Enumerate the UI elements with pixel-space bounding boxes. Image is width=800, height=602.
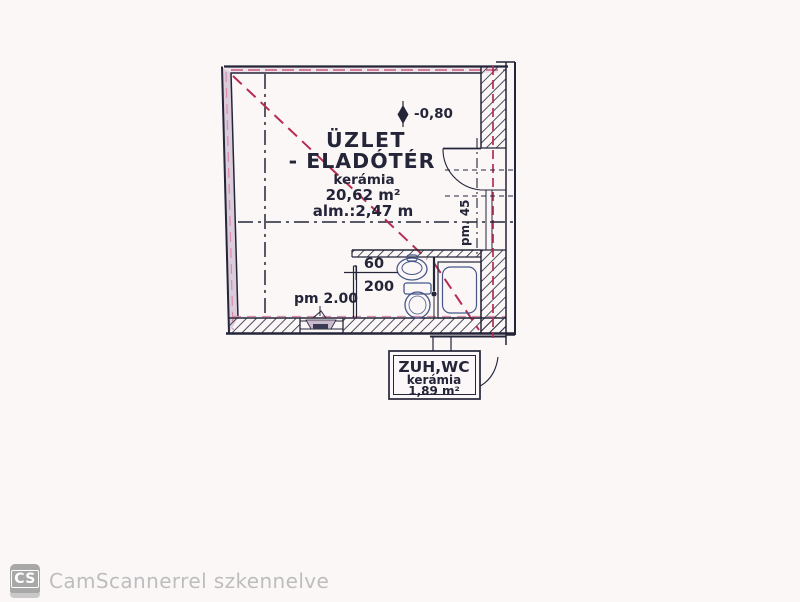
scanned-floor-plan-page: -0,80 ÜZLET - ELADÓTÉR kerámia 20,62 m² …: [0, 0, 800, 602]
parapet-bottom-label: pm 2.00: [294, 291, 358, 307]
room-height-note: alm.:2,47 m: [313, 202, 413, 220]
level-value: -0,80: [414, 106, 453, 122]
floor-plan-canvas: -0,80 ÜZLET - ELADÓTÉR kerámia 20,62 m² …: [0, 0, 800, 602]
shower-tray-icon: [438, 262, 481, 318]
door-swing-arc: [443, 149, 481, 191]
wet-room-label-box: ZUH,WC kerámia 1,89 m²: [389, 337, 498, 399]
level-marker-icon: [398, 101, 409, 127]
door-width-label: 60: [364, 256, 384, 272]
entry-door: [443, 149, 481, 191]
door-hinge-dot: [431, 291, 436, 296]
sink-icon: [397, 255, 427, 280]
parapet-right-label: pm. 45: [458, 199, 472, 246]
toilet-icon: [404, 283, 431, 318]
wet-room-area: 1,89 m²: [408, 384, 460, 398]
camscanner-watermark: CS CamScannerrel szkennelve: [10, 564, 329, 598]
main-room-labels: ÜZLET - ELADÓTÉR kerámia 20,62 m² alm.:2…: [289, 127, 436, 220]
bottom-window: [300, 306, 343, 334]
right-wall: [445, 62, 515, 345]
camscanner-logo-icon: CS: [10, 564, 40, 598]
door-height-label: 200: [364, 279, 394, 295]
room-title-line2: - ELADÓTÉR: [289, 148, 436, 173]
camscanner-logo-text: CS: [11, 570, 39, 588]
watermark-text: CamScannerrel szkennelve: [49, 569, 329, 593]
door-size-annotation: 60 200: [344, 256, 398, 295]
